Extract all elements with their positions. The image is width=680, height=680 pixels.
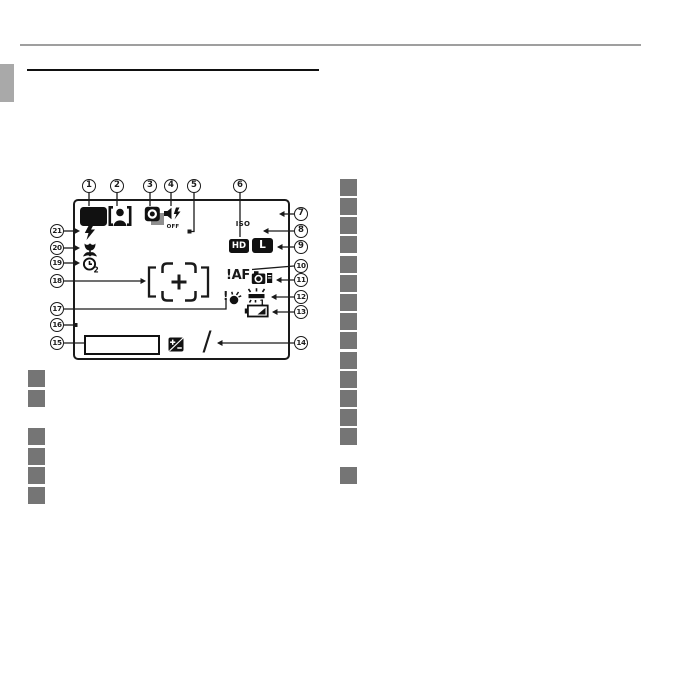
placeholder-block xyxy=(340,390,357,407)
placeholder-block xyxy=(340,236,357,253)
placeholder-block xyxy=(340,275,357,292)
callout-1: 1 xyxy=(82,179,96,193)
placeholder-block xyxy=(340,409,357,426)
callout-6: 6 xyxy=(233,179,247,193)
callout-7: 7 xyxy=(294,207,308,221)
date-stamp-icon xyxy=(84,335,160,355)
callout-11: 11 xyxy=(294,273,308,287)
placeholder-block xyxy=(340,332,357,349)
macro-icon xyxy=(82,241,98,257)
timer-index: 2 xyxy=(94,266,99,274)
callout-21: 21 xyxy=(50,224,64,238)
flash-mode-icon xyxy=(84,224,96,240)
callout-5: 5 xyxy=(187,179,201,193)
header-rule xyxy=(20,44,641,46)
placeholder-block xyxy=(28,487,45,504)
placeholder-block xyxy=(340,256,357,273)
callout-10: 10 xyxy=(294,259,308,273)
frame-counter-slash: / xyxy=(197,328,217,355)
page-edge-tab xyxy=(0,64,14,102)
silent-mode-icon: OFF xyxy=(163,205,183,230)
placeholder-block xyxy=(340,179,357,196)
battery-level-icon xyxy=(244,304,269,318)
callout-8: 8 xyxy=(294,224,308,238)
callout-13: 13 xyxy=(294,305,308,319)
placeholder-block xyxy=(340,217,357,234)
placeholder-block xyxy=(28,428,45,445)
callout-15: 15 xyxy=(50,336,64,350)
internal-memory-icon xyxy=(251,270,273,285)
blur-warning-icon: ! xyxy=(223,289,243,307)
self-timer-icon: 2 xyxy=(82,256,99,273)
callout-3: 3 xyxy=(143,179,157,193)
manual-page: 1 2 3 4 5 6 7 8 9 10 11 12 13 14 15 16 1… xyxy=(0,0,680,680)
speaker-bolt-icon xyxy=(163,207,183,220)
image-size-icon: L xyxy=(252,238,273,253)
placeholder-block xyxy=(28,467,45,484)
callout-4: 4 xyxy=(164,179,178,193)
blur-blob-icon xyxy=(228,289,242,306)
section-title-underline xyxy=(27,69,319,71)
placeholder-block xyxy=(340,198,357,215)
placeholder-block xyxy=(340,352,357,369)
placeholder-block xyxy=(28,370,45,387)
placeholder-block xyxy=(340,371,357,388)
continuous-shooting-icon xyxy=(144,206,165,226)
placeholder-block xyxy=(340,294,357,311)
af-warning-icon: !AF xyxy=(226,268,252,283)
callout-2: 2 xyxy=(110,179,124,193)
placeholder-block xyxy=(340,313,357,330)
callout-18: 18 xyxy=(50,274,64,288)
silent-off-label: OFF xyxy=(163,224,183,230)
placeholder-block xyxy=(340,467,357,484)
callout-9: 9 xyxy=(294,240,308,254)
callout-14: 14 xyxy=(294,336,308,350)
face-detection-icon xyxy=(108,206,132,226)
callout-12: 12 xyxy=(294,290,308,304)
placeholder-block xyxy=(28,448,45,465)
iso-label: ISO xyxy=(234,220,252,228)
callout-19: 19 xyxy=(50,256,64,270)
placeholder-block xyxy=(340,428,357,445)
placeholder-block xyxy=(28,390,45,407)
movie-quality-icon: HD xyxy=(229,239,249,253)
callout-17: 17 xyxy=(50,302,64,316)
callout-20: 20 xyxy=(50,241,64,255)
callout-16: 16 xyxy=(50,318,64,332)
exposure-comp-icon xyxy=(168,337,184,352)
